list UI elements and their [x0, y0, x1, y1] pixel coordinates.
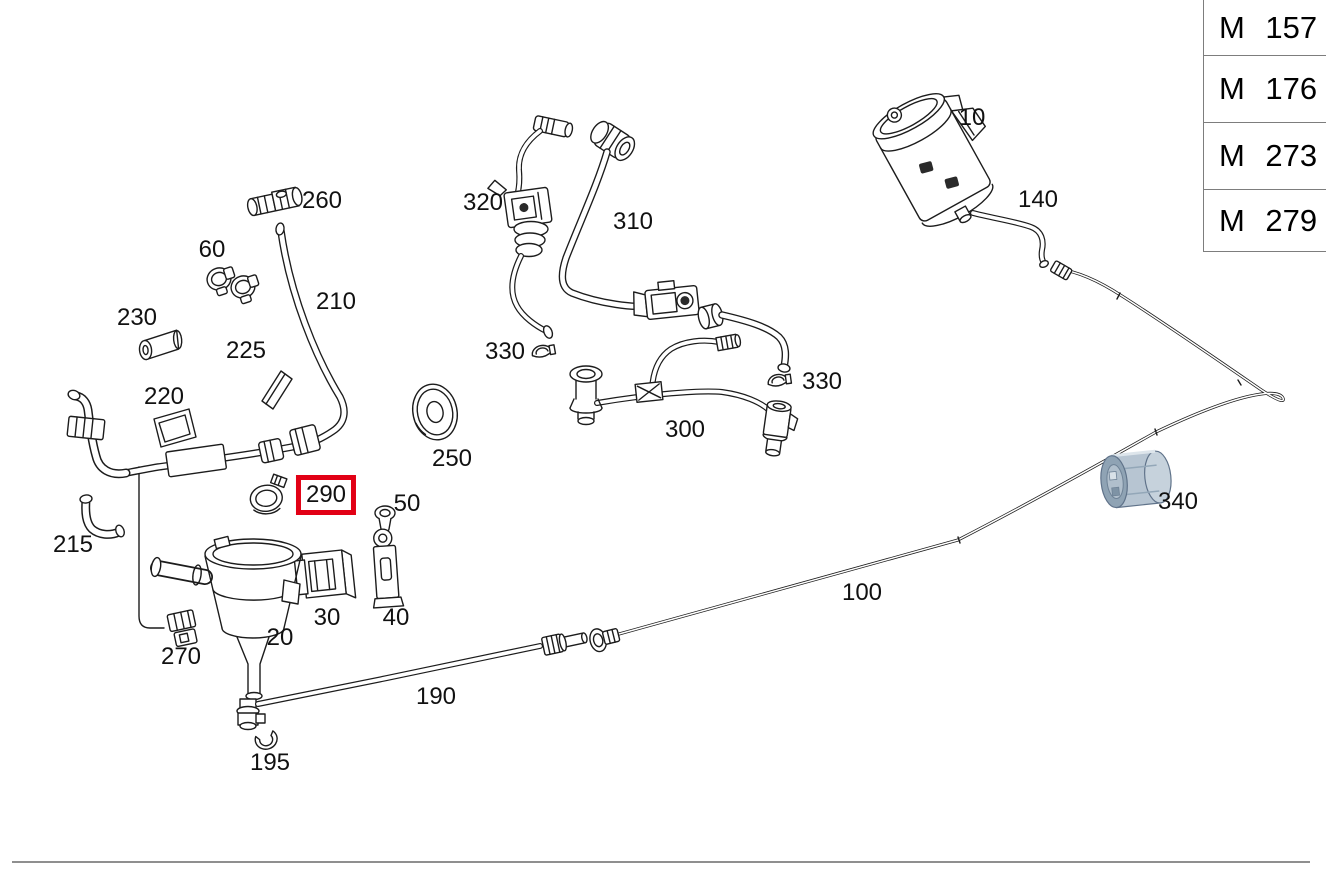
part-label-40[interactable]: 40 [383, 606, 410, 630]
part-310-drawing [562, 118, 790, 373]
part-label-225[interactable]: 225 [226, 339, 266, 363]
part-label-210[interactable]: 210 [316, 290, 356, 314]
part-label-300[interactable]: 300 [665, 418, 705, 442]
part-label-330-right[interactable]: 330 [802, 370, 842, 394]
footer-divider [12, 861, 1310, 863]
part-140-drawing [973, 213, 1049, 269]
part-320-drawing [487, 115, 574, 339]
leader-line [139, 467, 164, 628]
part-10-drawing [867, 73, 1022, 241]
part-label-30[interactable]: 30 [314, 606, 341, 630]
engine-code-label: M 279 [1219, 203, 1317, 239]
part-270-drawing [167, 610, 199, 648]
engine-code-label: M 157 [1219, 10, 1317, 46]
parts-illustration [0, 0, 1326, 881]
engine-code-label: M 176 [1219, 71, 1317, 107]
part-230-drawing [138, 330, 183, 360]
part-330-left-drawing [531, 343, 556, 358]
part-300-left-connector [570, 366, 602, 425]
part-label-260[interactable]: 260 [302, 189, 342, 213]
part-290-drawing [247, 472, 291, 516]
part-label-250[interactable]: 250 [432, 447, 472, 471]
part-label-20[interactable]: 20 [267, 626, 294, 650]
part-label-270[interactable]: 270 [161, 645, 201, 669]
part-260-drawing [246, 186, 304, 216]
part-label-140[interactable]: 140 [1018, 188, 1058, 212]
part-225-drawing [262, 371, 292, 409]
part-label-290-highlighted[interactable]: 290 [296, 475, 356, 515]
part-label-50[interactable]: 50 [394, 492, 421, 516]
part-220-drawing [154, 409, 196, 447]
engine-row-m176[interactable]: M 176 [1204, 56, 1326, 123]
part-label-195[interactable]: 195 [250, 751, 290, 775]
part-60-drawing [204, 264, 263, 306]
part-label-100[interactable]: 100 [842, 581, 882, 605]
part-250-drawing [408, 380, 463, 444]
engine-row-m279[interactable]: M 279 [1204, 190, 1326, 252]
part-label-220[interactable]: 220 [144, 385, 184, 409]
part-label-340[interactable]: 340 [1158, 490, 1198, 514]
engine-code-label: M 273 [1219, 138, 1317, 174]
part-label-330-left[interactable]: 330 [485, 340, 525, 364]
parts-diagram-page: 260 60 230 225 220 210 215 290 50 250 32… [0, 0, 1326, 881]
part-label-190[interactable]: 190 [416, 685, 456, 709]
part-label-10[interactable]: 10 [959, 106, 986, 130]
engine-code-table: M 157 M 176 M 273 M 279 [1203, 0, 1326, 252]
part-label-310[interactable]: 310 [613, 210, 653, 234]
part-label-60[interactable]: 60 [199, 238, 226, 262]
part-330-right-drawing [767, 373, 791, 387]
engine-row-m157[interactable]: M 157 [1204, 0, 1326, 56]
part-100-connector-drawing [588, 624, 622, 653]
part-label-215[interactable]: 215 [53, 533, 93, 557]
engine-row-m273[interactable]: M 273 [1204, 123, 1326, 190]
part-40-drawing [368, 528, 403, 608]
part-label-320[interactable]: 320 [463, 191, 503, 215]
part-30-drawing [294, 549, 356, 604]
part-label-230[interactable]: 230 [117, 306, 157, 330]
part-50-drawing [375, 506, 395, 532]
